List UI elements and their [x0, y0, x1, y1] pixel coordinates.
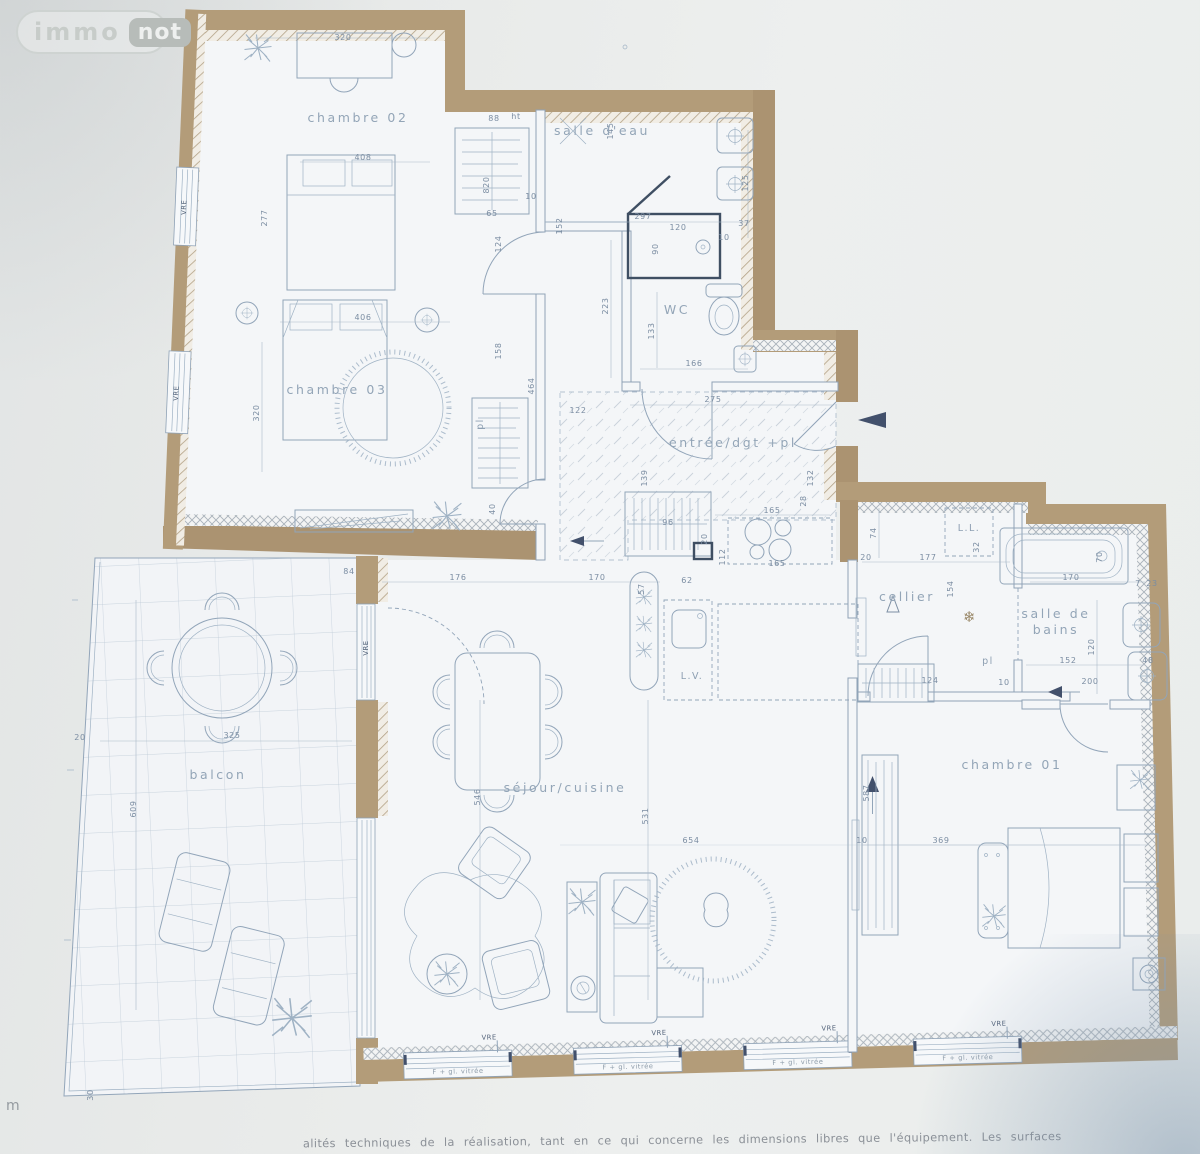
room-label-balcon: balcon [189, 767, 246, 782]
dim-label: 587 [862, 784, 871, 801]
dim-label: 297 [634, 212, 651, 221]
dim-label: 275 [704, 395, 721, 404]
window-label: VRE [481, 1033, 496, 1041]
dim-label: 820 [482, 176, 491, 193]
dim-label: 37 [738, 219, 749, 228]
dim-label: 531 [641, 807, 650, 824]
dim-label: 122 [569, 406, 586, 415]
dim-label: 406 [354, 313, 371, 322]
window-glazing-label: F + gl. vitrée [432, 1067, 483, 1076]
dim-label: 90 [651, 243, 660, 254]
dim-label: 124 [494, 235, 503, 252]
room-label-chambre-02: chambre 02 [308, 110, 409, 125]
window-label: VRE [821, 1024, 836, 1032]
room-label-cellier: cellier [879, 589, 935, 604]
dim-label: 30 [86, 1089, 95, 1100]
window-left-1: VRE [174, 167, 199, 246]
closet-label-pl: pl [475, 418, 486, 430]
freezer-snowflake-icon: ❄ [963, 608, 976, 626]
dim-label: 133 [647, 322, 656, 339]
window-glazing-label: F + gl. vitrée [602, 1062, 653, 1071]
dim-label: 74 [869, 527, 878, 538]
window-left-2: VRE [166, 351, 191, 434]
window-label: VRE [172, 385, 181, 400]
floor-plan-svg: VRE VRE VRE F + gl. vitrée VRE F + gl. v… [0, 0, 1200, 1154]
dim-label: 120 [669, 223, 686, 232]
dim-label: 177 [919, 553, 936, 562]
room-label-sejour-cuisine: séjour/cuisine [504, 780, 627, 795]
dim-label: 124 [921, 676, 938, 685]
dim-label: 40 [488, 503, 497, 514]
dim-label: 170 [1062, 573, 1079, 582]
room-label-chambre-03: chambre 03 [287, 382, 388, 397]
dim-label: 23 [1146, 579, 1157, 588]
dim-label: 223 [601, 297, 610, 314]
dim-label: 325 [223, 731, 240, 740]
dim-label: 10 [525, 192, 536, 201]
dim-label: 28 [799, 495, 808, 506]
dim-label: 48 [1142, 656, 1153, 665]
logo-not-badge: not [129, 18, 191, 47]
window-glazing-label: F + gl. vitrée [942, 1053, 993, 1062]
dim-label: 464 [527, 377, 536, 394]
dim-label: 320 [334, 33, 351, 42]
dim-label: 20 [700, 533, 709, 544]
room-label-salle-de-bains: salle de [1021, 606, 1090, 621]
dim-label: 70 [1095, 551, 1104, 562]
dim-label: 152 [555, 217, 564, 234]
dim-label: 10 [998, 678, 1009, 687]
dim-label: 62 [681, 576, 692, 585]
dim-label: 176 [449, 573, 466, 582]
dim-label: 32 [972, 541, 981, 552]
washer-label: L.L. [958, 523, 981, 534]
immonot-logo: immo not [16, 10, 168, 54]
dim-label: 7 [1135, 579, 1141, 588]
dim-label: ht [511, 112, 520, 121]
dim-label: 125 [741, 174, 750, 191]
room-label-chambre-01: chambre 01 [962, 757, 1063, 772]
dim-label: 20 [74, 733, 85, 742]
dim-label: 546 [473, 788, 482, 805]
dim-label: 132 [806, 469, 815, 486]
pl-label: pl [982, 656, 994, 667]
window-label: VRE [180, 200, 189, 215]
dim-label: 166 [685, 359, 702, 368]
dim-label: 112 [718, 548, 727, 565]
dim-label: 10 [718, 233, 729, 242]
window-label: VRE [991, 1020, 1006, 1028]
dim-label: 139 [640, 469, 649, 486]
dim-label: 88 [488, 114, 499, 123]
dim-label: 96 [662, 518, 673, 527]
dishwasher-label: L.V. [681, 671, 704, 682]
room-label-salle-de-bains-2: bains [1033, 622, 1080, 637]
entrance-arrow-icon [858, 412, 886, 428]
logo-immo-text: immo [34, 18, 121, 46]
dim-label: 57 [637, 583, 646, 594]
dim-label: 165 [768, 559, 785, 568]
dim-label: 165 [763, 506, 780, 515]
dim-label: 84 [343, 567, 354, 576]
dim-label: 408 [354, 153, 371, 162]
dim-label: 200 [1081, 677, 1098, 686]
dim-label: 609 [129, 800, 138, 817]
dim-label: 65 [486, 209, 497, 218]
dim-label: 152 [1059, 656, 1076, 665]
dim-label: 158 [494, 342, 503, 359]
dim-label: 154 [946, 580, 955, 597]
dim-label: 320 [252, 404, 261, 421]
room-label-wc: WC [664, 302, 690, 317]
dim-label: 654 [682, 836, 699, 845]
dim-label: 120 [1087, 638, 1096, 655]
edge-letter: m [6, 1098, 20, 1114]
room-label-salle-eau: salle d'eau [554, 123, 650, 138]
dim-label: 369 [932, 836, 949, 845]
dim-label: 20 [860, 553, 871, 562]
dim-label: 10 [856, 836, 867, 845]
dim-label: 170 [588, 573, 605, 582]
window-label: VRE [362, 640, 370, 655]
window-label: VRE [651, 1029, 666, 1037]
window-glazing-label: F + gl. vitrée [772, 1058, 823, 1067]
photographed-floor-plan: VRE VRE VRE F + gl. vitrée VRE F + gl. v… [0, 0, 1200, 1154]
dim-label: 277 [260, 209, 269, 226]
room-label-entree: entrée/dgt +pl [669, 435, 797, 450]
